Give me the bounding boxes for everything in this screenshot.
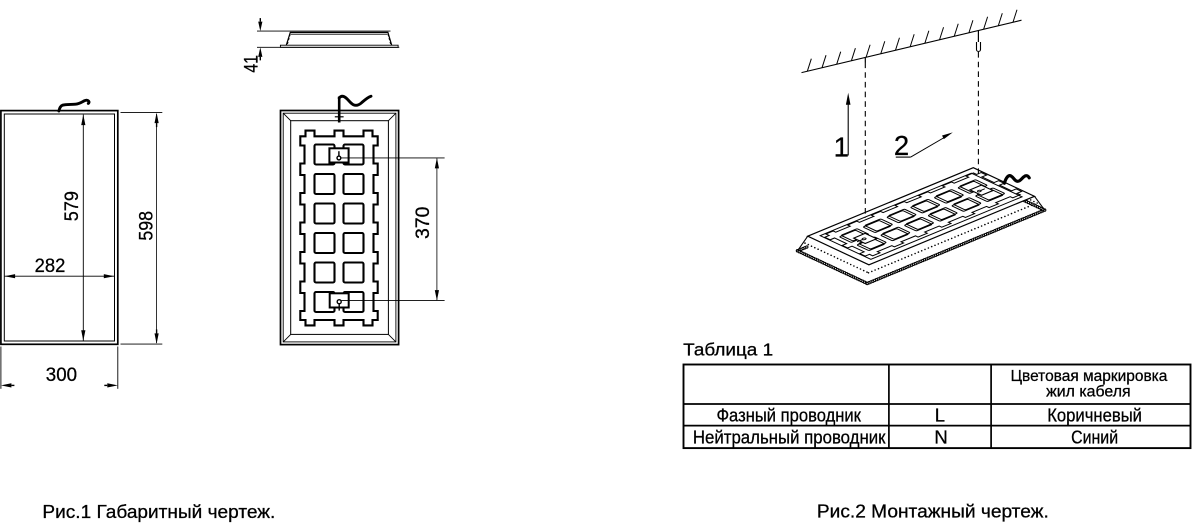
svg-text:41: 41 [241, 55, 262, 73]
svg-text:579: 579 [62, 191, 83, 221]
svg-text:300: 300 [46, 365, 77, 386]
svg-text:жил кабеля: жил кабеля [1046, 384, 1131, 401]
svg-text:Фазный проводник: Фазный проводник [716, 406, 861, 426]
svg-text:Рис.1 Габаритный чертеж.: Рис.1 Габаритный чертеж. [42, 501, 275, 522]
svg-text:L: L [935, 405, 945, 426]
svg-text:Коричневый: Коричневый [1047, 406, 1142, 426]
svg-text:Цветовая маркировка: Цветовая маркировка [1011, 368, 1168, 385]
svg-text:1: 1 [834, 132, 849, 163]
svg-text:Таблица 1: Таблица 1 [683, 339, 773, 359]
svg-text:Нейтральный проводник: Нейтральный проводник [693, 427, 886, 447]
svg-text:N: N [934, 426, 947, 447]
svg-text:Синий: Синий [1071, 427, 1118, 447]
svg-text:598: 598 [137, 211, 158, 241]
svg-text:282: 282 [35, 256, 66, 277]
svg-text:Рис.2 Монтажный чертеж.: Рис.2 Монтажный чертеж. [817, 501, 1049, 522]
svg-text:370: 370 [413, 207, 434, 239]
